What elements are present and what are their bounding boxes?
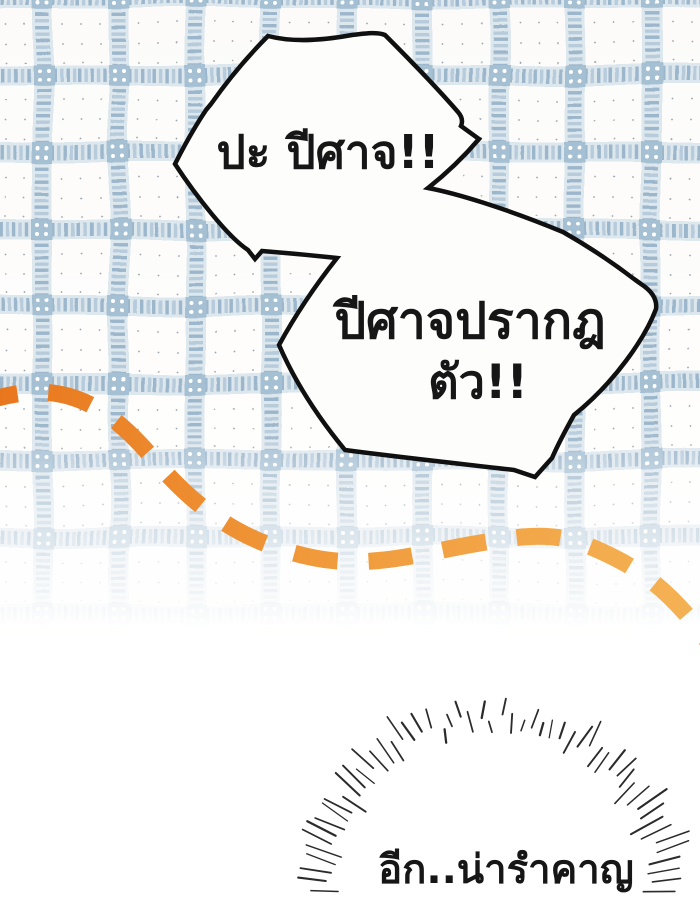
scene-svg: ปะ ปีศาจ!! ปีศาจปรากฎ ตัว!! อีก..น่ารำคา… <box>0 0 700 900</box>
speech-bubble-2-text-line-2: ตัว!! <box>428 355 528 410</box>
speech-bubble-1-text: ปะ ปีศาจ!! <box>216 125 439 179</box>
caption-text: อีก..น่ารำคาญ <box>378 847 634 893</box>
comic-panel: ปะ ปีศาจ!! ปีศาจปรากฎ ตัว!! อีก..น่ารำคา… <box>0 0 700 900</box>
speech-bubble-2-text-line-1: ปีศาจปรากฎ <box>332 292 606 350</box>
